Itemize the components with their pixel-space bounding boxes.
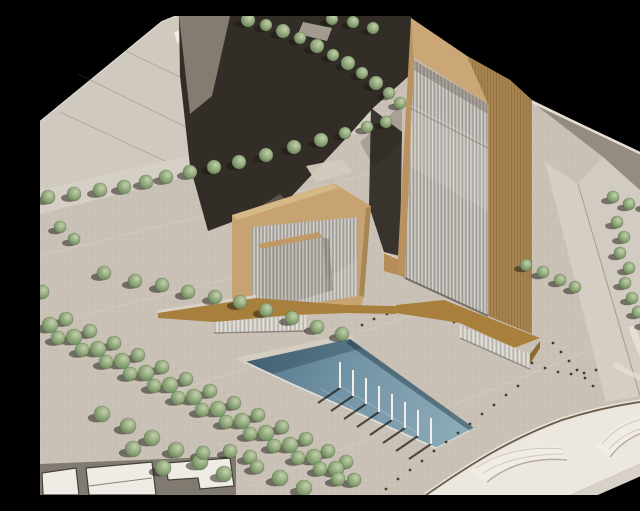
tree: [618, 231, 630, 243]
tree: [626, 292, 638, 304]
tree: [107, 336, 121, 350]
tree: [99, 355, 113, 369]
tree: [159, 170, 173, 184]
bollard-dot: [445, 441, 448, 444]
tree: [207, 160, 221, 174]
tree: [272, 470, 288, 486]
bollard-dot: [560, 351, 563, 354]
tree: [623, 198, 635, 210]
tree: [259, 148, 273, 162]
tree: [258, 425, 274, 441]
bollard-dot: [544, 367, 547, 370]
tower-podium-left-band: [347, 305, 396, 314]
bollard-dot: [433, 450, 436, 453]
bollard-dot: [552, 342, 555, 345]
flagpole: [391, 394, 393, 420]
tree: [243, 427, 257, 441]
bollard-dot: [576, 369, 579, 372]
bollard-dot: [557, 371, 560, 374]
tree: [208, 290, 222, 304]
tree: [117, 180, 131, 194]
tree: [75, 343, 89, 357]
tree: [607, 191, 619, 203]
bollard-dot: [583, 372, 586, 375]
bollard-dot: [373, 318, 376, 321]
tree: [120, 418, 136, 434]
bollard-dot: [568, 360, 571, 363]
tree: [131, 348, 145, 362]
tree: [310, 320, 324, 334]
tree: [114, 353, 130, 369]
bollard-dot: [517, 385, 520, 388]
tree: [147, 379, 161, 393]
bollard-dot: [505, 394, 508, 397]
tree: [232, 155, 246, 169]
tree: [520, 259, 532, 271]
tree: [380, 116, 392, 128]
tree: [347, 473, 361, 487]
tree: [619, 277, 631, 289]
tree: [183, 165, 197, 179]
tree: [285, 311, 299, 325]
tree: [291, 451, 305, 465]
tree: [186, 389, 202, 405]
tree: [347, 16, 359, 28]
tree: [219, 415, 233, 429]
tree: [90, 341, 106, 357]
tree: [210, 401, 226, 417]
flagpole: [378, 386, 380, 412]
bollard-dot: [469, 423, 472, 426]
tree: [59, 312, 73, 326]
tree: [383, 87, 395, 99]
tree: [251, 408, 265, 422]
tree: [326, 16, 338, 25]
bollard-dot: [595, 369, 598, 372]
flagpole: [352, 370, 354, 396]
bollard-dot: [397, 478, 400, 481]
tree: [356, 67, 368, 79]
tree: [66, 329, 82, 345]
tree: [294, 32, 306, 44]
tree: [42, 317, 58, 333]
tree: [623, 262, 635, 274]
tree: [171, 391, 185, 405]
tree: [67, 187, 81, 201]
tree: [554, 274, 566, 286]
tree: [139, 175, 153, 189]
tree: [241, 16, 255, 27]
tree: [155, 360, 169, 374]
tree: [41, 190, 55, 204]
model-photo: Aerial photograph of an architectural sc…: [40, 16, 640, 495]
flagpole: [417, 410, 419, 436]
bollard-dot: [584, 377, 587, 380]
tree: [216, 466, 232, 482]
bollard-dot: [493, 404, 496, 407]
tree: [394, 97, 406, 109]
tree: [310, 39, 324, 53]
tree: [125, 441, 141, 457]
tree: [83, 324, 97, 338]
bollard-dot: [421, 460, 424, 463]
tree: [267, 439, 281, 453]
tree: [282, 437, 298, 453]
bollard-dot: [409, 469, 412, 472]
tree: [223, 444, 237, 458]
tree: [138, 365, 154, 381]
tree: [51, 331, 65, 345]
tree: [93, 183, 107, 197]
tree: [179, 372, 193, 386]
tree: [569, 281, 581, 293]
tree: [94, 406, 110, 422]
flagpole: [365, 378, 367, 404]
tree: [327, 49, 339, 61]
tree: [234, 413, 250, 429]
tree: [54, 221, 66, 233]
tree: [537, 266, 549, 278]
tree: [123, 367, 137, 381]
tree: [335, 327, 349, 341]
tree: [361, 121, 373, 133]
tree: [68, 233, 80, 245]
tree: [203, 384, 217, 398]
bollard-dot: [385, 488, 388, 491]
tree: [195, 403, 209, 417]
tree: [162, 377, 178, 393]
tree: [341, 56, 355, 70]
bollard-dot: [570, 373, 573, 376]
tree: [339, 127, 351, 139]
tree: [313, 462, 327, 476]
tree: [614, 247, 626, 259]
tree: [128, 274, 142, 288]
tree: [611, 216, 623, 228]
tree: [144, 430, 160, 446]
tree: [367, 22, 379, 34]
tree: [233, 295, 247, 309]
tree: [196, 446, 210, 460]
tree: [331, 472, 345, 486]
tree: [259, 303, 273, 317]
tree: [287, 140, 301, 154]
bollard-dot: [481, 413, 484, 416]
tree: [299, 432, 313, 446]
tree: [97, 266, 111, 280]
tree: [250, 460, 264, 474]
flagpole: [430, 418, 432, 444]
flagpole: [404, 402, 406, 428]
tree: [275, 420, 289, 434]
tree: [227, 396, 241, 410]
tree: [321, 444, 335, 458]
tree: [168, 442, 184, 458]
tree: [260, 19, 272, 31]
bollard-dot: [457, 432, 460, 435]
flagpole: [339, 362, 341, 388]
tree: [296, 480, 312, 495]
white-block: [42, 468, 79, 495]
bollard-dot: [592, 385, 595, 388]
model-photo-canvas: [40, 16, 640, 495]
tree: [155, 278, 169, 292]
bollard-dot: [361, 324, 364, 327]
tree: [276, 24, 290, 38]
tree: [181, 285, 195, 299]
tree: [155, 460, 171, 476]
tree: [314, 133, 328, 147]
tree: [369, 76, 383, 90]
